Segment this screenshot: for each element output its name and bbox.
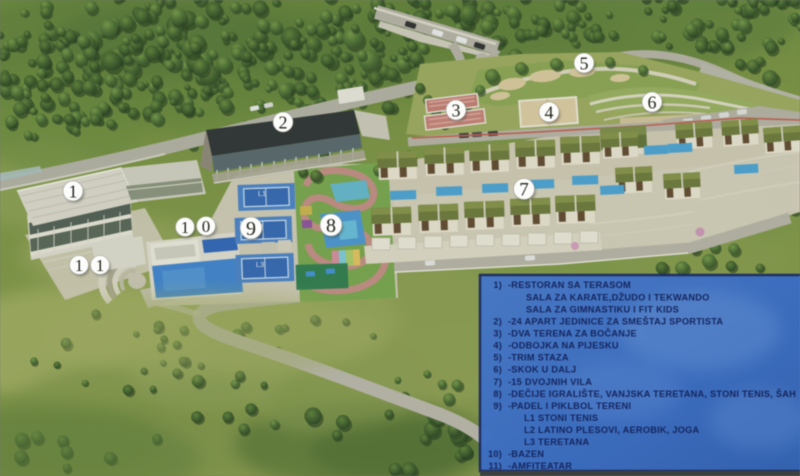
svg-text:-DVA TERENA ZA BOČANJE: -DVA TERENA ZA BOČANJE <box>508 328 637 339</box>
svg-text:5): 5) <box>493 353 502 363</box>
svg-text:-BAZEN: -BAZEN <box>508 449 544 459</box>
svg-text:-15 DVOJNIH VILA: -15 DVOJNIH VILA <box>508 377 592 387</box>
svg-text:L1 STONI TENIS: L1 STONI TENIS <box>524 413 598 423</box>
svg-text:-ODBOJKA NA PIJESKU: -ODBOJKA NA PIJESKU <box>508 341 619 351</box>
svg-text:8: 8 <box>326 215 336 237</box>
svg-text:L2 LATINO PLESOVI, AEROBIK, JO: L2 LATINO PLESOVI, AEROBIK, JOGA <box>524 425 700 435</box>
svg-text:-SKOK U DALJ: -SKOK U DALJ <box>508 365 576 375</box>
svg-text:10): 10) <box>488 449 502 459</box>
svg-text:4: 4 <box>545 102 554 122</box>
svg-text:2): 2) <box>493 316 502 326</box>
svg-text:8): 8) <box>493 389 502 399</box>
svg-text:SALA ZA GIMNASTIKU I FIT KIDS: SALA ZA GIMNASTIKU I FIT KIDS <box>526 304 679 314</box>
svg-text:7): 7) <box>493 377 502 387</box>
svg-text:1: 1 <box>69 181 78 201</box>
svg-text:7: 7 <box>519 180 529 201</box>
svg-text:-TRIM STAZA: -TRIM STAZA <box>508 353 569 363</box>
svg-text:9: 9 <box>246 218 256 240</box>
svg-text:6: 6 <box>648 92 657 112</box>
svg-text:2: 2 <box>279 112 288 132</box>
svg-text:5: 5 <box>580 53 589 73</box>
svg-text:-24 APART JEDINICE ZA SMEŠTAJ: -24 APART JEDINICE ZA SMEŠTAJ SPORTISTA <box>508 315 723 326</box>
svg-text:1: 1 <box>96 256 105 275</box>
svg-text:1: 1 <box>75 256 84 275</box>
svg-text:-AMFITEATAR: -AMFITEATAR <box>508 461 572 471</box>
svg-text:1): 1) <box>493 280 502 290</box>
svg-text:3: 3 <box>452 100 461 120</box>
svg-text:SALA ZA KARATE,DŽUDO I TEKWAND: SALA ZA KARATE,DŽUDO I TEKWANDO <box>526 291 710 302</box>
svg-text:-PADEL I PIKLBOL TERENI: -PADEL I PIKLBOL TERENI <box>508 401 631 411</box>
svg-text:4): 4) <box>493 341 502 351</box>
svg-text:0: 0 <box>202 217 211 236</box>
svg-text:9): 9) <box>493 401 502 411</box>
svg-text:3): 3) <box>493 329 502 339</box>
svg-text:11): 11) <box>488 461 502 471</box>
svg-text:-RESTORAN SA TERASOM: -RESTORAN SA TERASOM <box>508 280 631 290</box>
svg-text:L3 TERETANA: L3 TERETANA <box>524 437 589 447</box>
svg-text:1: 1 <box>181 218 190 237</box>
svg-text:6): 6) <box>493 365 502 375</box>
svg-text:-DEČIJE IGRALIŠTE, VANJSKA TER: -DEČIJE IGRALIŠTE, VANJSKA TERETANA, STO… <box>508 388 796 399</box>
